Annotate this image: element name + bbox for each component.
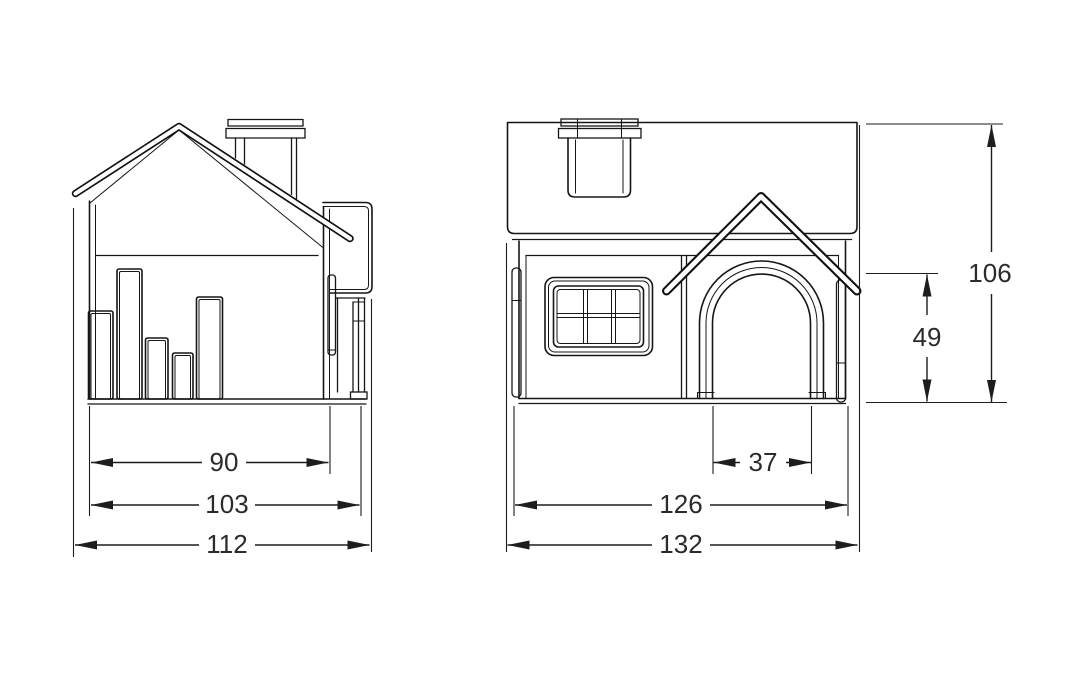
- front-chimney: [559, 119, 642, 197]
- front-door-arch: [698, 261, 826, 399]
- side-arch-leg-profile: [336, 298, 367, 399]
- front-view-dimensions: 37 126 132 106 49: [507, 124, 1012, 559]
- dim-label-front-door-height: 49: [913, 322, 942, 352]
- side-wall-slats: [89, 269, 223, 399]
- side-door-canopy-profile: [323, 203, 372, 294]
- dim-label-side-inner: 90: [210, 447, 239, 477]
- drawing-svg: 90 103 112 37 126: [0, 0, 1080, 674]
- dimension-front-106: 106: [968, 125, 1011, 402]
- dimension-front-49: 49: [913, 275, 942, 402]
- dim-label-front-height: 106: [968, 258, 1011, 288]
- dimension-front-126: 126: [515, 489, 847, 519]
- dim-label-front-inner: 126: [659, 489, 702, 519]
- side-view: [76, 120, 373, 405]
- front-view: [508, 119, 858, 404]
- dim-label-side-full: 112: [206, 529, 247, 559]
- front-window: [545, 278, 653, 356]
- dim-label-side-mid: 103: [205, 489, 248, 519]
- dimension-side-112: 112: [75, 529, 370, 559]
- technical-drawing-canvas: 90 103 112 37 126: [0, 0, 1080, 674]
- front-roof-slab: [508, 123, 858, 240]
- front-walls: [519, 241, 846, 404]
- dimension-side-103: 103: [91, 489, 360, 519]
- front-door-gable-canopy: [667, 197, 858, 292]
- side-roof-panel: [76, 127, 351, 239]
- dimension-front-132: 132: [508, 529, 858, 559]
- dim-label-front-door-width: 37: [749, 447, 778, 477]
- dimension-front-37: 37: [714, 447, 812, 477]
- dimension-side-90: 90: [91, 447, 329, 477]
- dim-label-front-full: 132: [659, 529, 702, 559]
